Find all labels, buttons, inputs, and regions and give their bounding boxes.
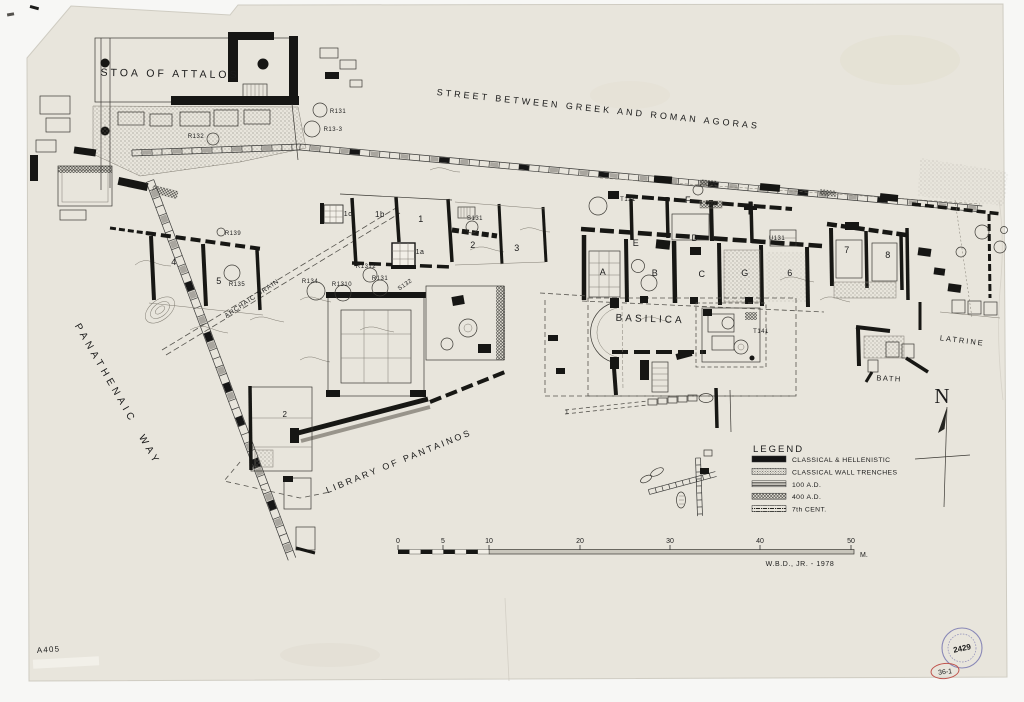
scale-tick-label: 10: [485, 538, 493, 545]
ink-mark: [30, 5, 39, 10]
legend-swatch-hlines: [752, 481, 786, 487]
sheet-number: A405: [37, 644, 61, 655]
deposit-label: T141: [753, 329, 769, 335]
room-label: 6: [787, 268, 793, 278]
deposit-label: R13-3: [324, 127, 343, 133]
legend-swatch-crosshatch: [752, 493, 786, 499]
mosaic-floor: [324, 205, 343, 223]
mosaic-floor: [392, 243, 415, 267]
room-label: 1b: [375, 210, 385, 219]
deposit-label: R131: [372, 276, 389, 282]
stoa-of-attalos-label: STOA OF ATTALOS: [100, 67, 239, 81]
room-label: E: [633, 238, 640, 248]
legend-swatch-dashdot: [752, 506, 786, 512]
bath-label: BATH: [876, 373, 902, 383]
north-label: N: [934, 384, 949, 408]
legend-item-label: CLASSICAL & HELLENISTIC: [792, 457, 890, 464]
room-label: 4: [171, 257, 177, 267]
deposit-label: T131: [620, 197, 636, 203]
scale-unit: M.: [860, 552, 868, 559]
room-label: G: [741, 268, 749, 278]
scale-tick-label: 40: [756, 538, 764, 545]
ink-mark: [7, 12, 14, 16]
room-label: 5: [216, 276, 222, 286]
room-label: A: [600, 267, 607, 277]
deposit-label: R1310: [332, 282, 352, 288]
legend-item-label: 7th CENT.: [792, 507, 827, 514]
deposit-label: U131: [769, 236, 786, 242]
room-label: 1a: [416, 249, 425, 256]
deposit-label: R134: [302, 279, 319, 285]
paper-stain: [840, 35, 960, 85]
room-label: B: [652, 268, 659, 278]
scale-tick-label: 0: [396, 538, 400, 545]
legend-swatch-stipple: [752, 468, 786, 474]
room-label: 1: [565, 410, 569, 416]
deposit-label: R131: [330, 109, 347, 115]
room-label: 1c: [344, 211, 352, 218]
scanned-drawing-sheet: LEGEND CLASSICAL & HELLENISTICCLASSICAL …: [0, 0, 1024, 702]
room-label: F: [685, 195, 691, 205]
column-dot: [258, 59, 269, 70]
cross-feature: [749, 202, 753, 215]
scale-tick-label: 30: [666, 538, 674, 545]
deposit-label: R132: [188, 134, 205, 140]
room-label: D: [692, 233, 699, 243]
scale-tick-label: 20: [576, 538, 584, 545]
legend-swatch-solid: [752, 456, 786, 462]
legend-title: LEGEND: [753, 444, 804, 455]
scale-tick-label: 50: [847, 538, 855, 545]
room-label: 1: [418, 214, 424, 224]
red-mark: 36-1: [938, 668, 953, 676]
legend-item-label: CLASSICAL WALL TRENCHES: [792, 469, 897, 476]
scale-tick-label: 5: [441, 538, 445, 545]
room-label: 2: [283, 410, 288, 419]
site-plan: LEGEND CLASSICAL & HELLENISTICCLASSICAL …: [0, 0, 1024, 702]
room-label: 8: [885, 250, 891, 260]
room-label: 7: [844, 245, 850, 255]
deposit-label: R135: [229, 282, 246, 288]
legend-item-label: 100 A.D.: [792, 482, 821, 489]
deposit-label: S131: [467, 216, 483, 222]
room-label: C: [699, 269, 706, 279]
room-label: 2: [470, 240, 476, 250]
deposit-label: R1312: [356, 264, 376, 270]
paper-stain: [280, 643, 380, 667]
deposit-label: R139: [225, 231, 242, 237]
room-label: 3: [514, 243, 520, 253]
drawing-credit: W.B.D., JR. - 1978: [766, 561, 835, 568]
legend-item-label: 400 A.D.: [792, 494, 821, 501]
